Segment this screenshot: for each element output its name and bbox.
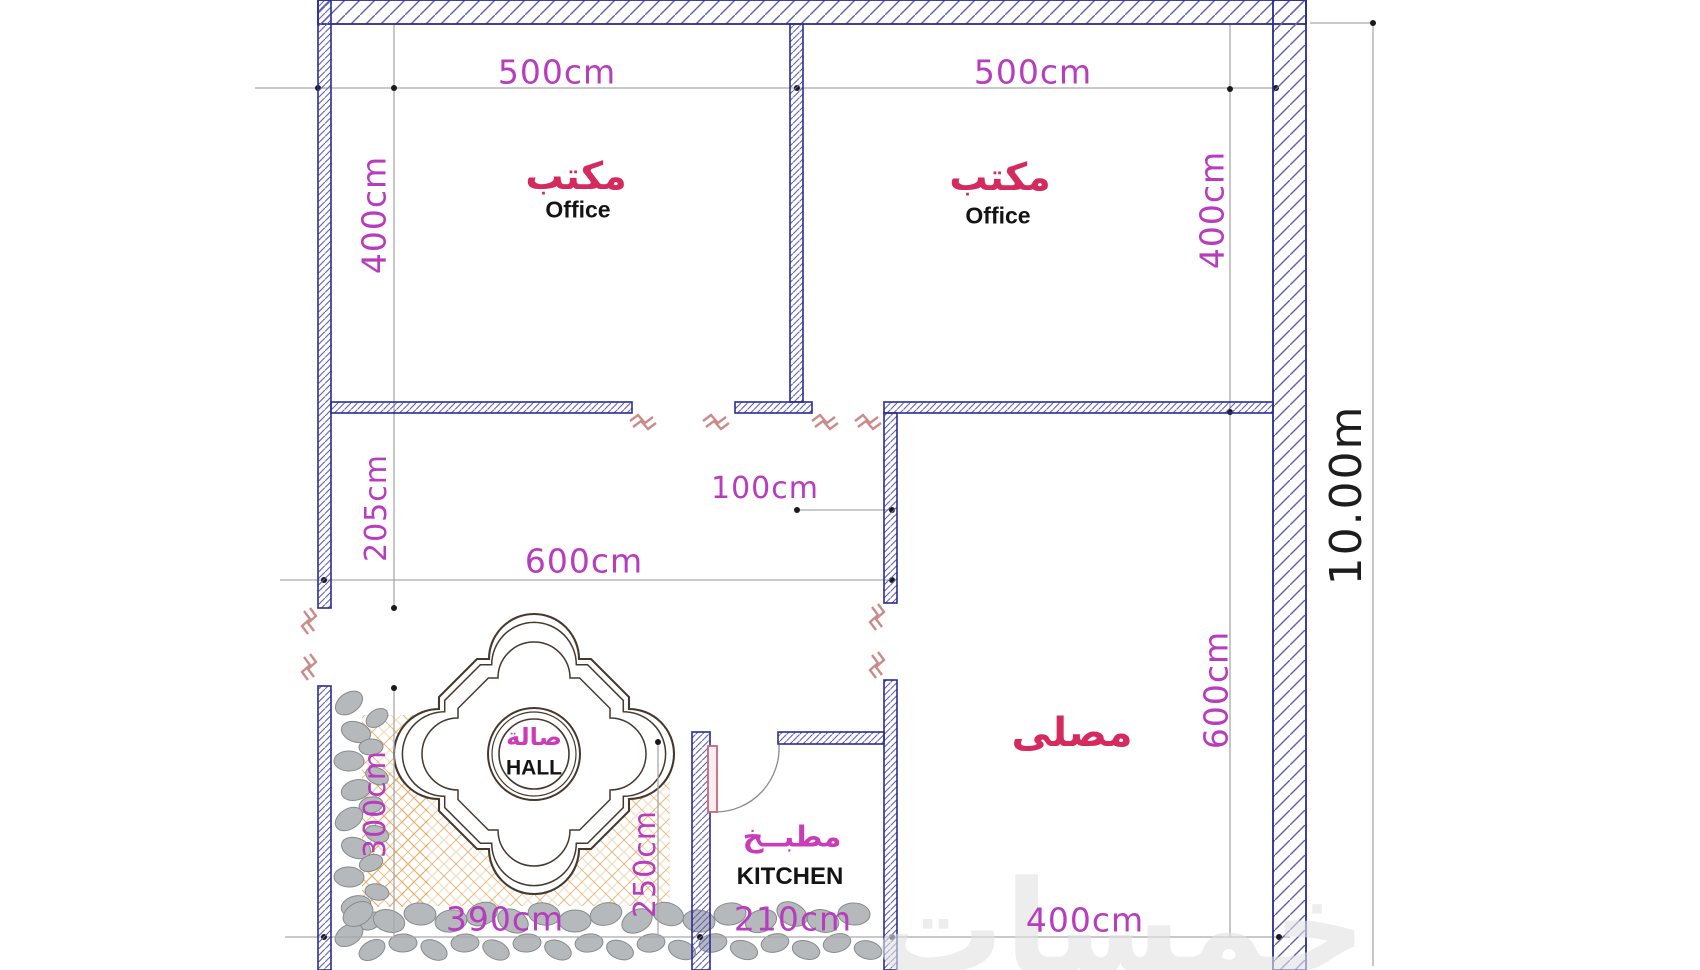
stone [636,932,666,954]
dim-terrace-width: 390cm [446,903,564,936]
dim-kitchen-width: 210cm [734,903,852,936]
stone [355,935,388,965]
dim-hall-width: 600cm [525,545,643,578]
dim-office-left-width: 500cm [498,56,616,89]
stone [604,936,637,963]
room-label-hall-ar: صالة [506,725,562,749]
dim-kitchen-side: 250cm [631,810,661,918]
wall-middle-left [331,402,632,413]
stone [574,932,604,953]
wall-office-divider-foot [735,402,812,413]
door-swing-arc [717,745,779,812]
dim-hall-upper: 205cm [362,454,392,562]
room-label-prayer-ar: مصلى [1012,713,1133,753]
floor-plan-canvas: خمسات 500cm 500cm 400cm 400cm 205cm 600c… [0,0,1700,970]
stone [417,935,450,964]
dim-prayer-width: 400cm [1026,904,1144,937]
wall-middle-right [884,402,1273,413]
door-leaf [708,746,717,812]
break-mark [703,415,729,429]
dim-terrace-height: 300cm [361,750,391,858]
wall-exterior-top [318,0,1306,24]
wall-office-divider [790,24,803,402]
room-label-office-left-en: Office [545,199,610,222]
room-label-office-left-ar: مكتب [525,157,626,195]
stone [370,906,407,936]
dim-office-right-height: 400cm [1196,151,1229,269]
break-mark [302,608,316,634]
floor-plan-drawing [0,0,1700,970]
break-mark [855,415,881,429]
stone [331,686,367,720]
kitchen-door [708,745,779,812]
wall-exterior-left-upper [318,0,331,608]
room-label-kitchen-en: KITCHEN [737,865,844,889]
break-mark [812,415,838,429]
stone [479,936,512,964]
wall-exterior-left-lower [318,686,331,970]
dim-office-left-height: 400cm [358,156,391,274]
break-mark [870,652,884,678]
stone [728,937,760,963]
dim-prayer-height: 600cm [1200,631,1233,749]
break-mark [302,654,316,680]
room-label-office-right-en: Office [965,205,1030,228]
room-label-kitchen-ar: مطبــخ [743,823,842,852]
stone [790,937,822,962]
dim-passage-width: 100cm [711,474,819,504]
room-label-office-right-ar: مكتب [949,158,1050,196]
stone [542,936,575,964]
wall-kitchen-top [778,732,884,744]
room-label-hall-en: HALL [506,758,562,779]
wall-exterior-right [1273,0,1306,970]
break-mark [630,415,656,429]
dim-office-right-width: 500cm [974,56,1092,89]
dim-total-height: 10.00m [1325,405,1369,586]
break-mark [870,604,884,630]
wall-prayer-left-upper [884,413,897,603]
stone [333,866,364,888]
